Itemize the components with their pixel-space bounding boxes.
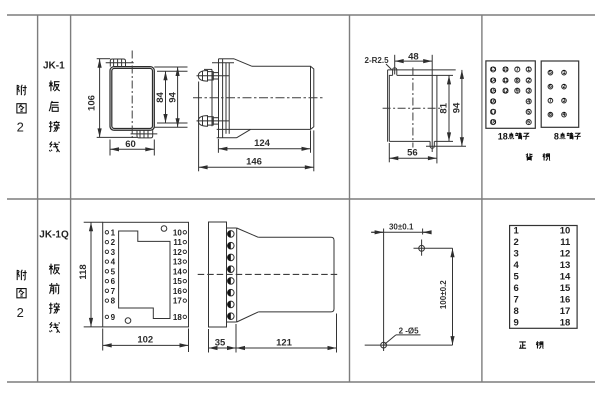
svg-text:8: 8: [516, 78, 519, 84]
svg-text:121: 121: [276, 338, 293, 349]
svg-text:100±0.2: 100±0.2: [439, 280, 448, 309]
svg-text:2: 2: [17, 305, 24, 320]
svg-text:8: 8: [549, 112, 552, 118]
svg-text:4: 4: [563, 112, 566, 118]
svg-text:7: 7: [111, 287, 116, 296]
svg-text:12: 12: [173, 248, 182, 257]
svg-text:56: 56: [407, 148, 418, 159]
svg-text:1: 1: [111, 228, 116, 237]
svg-text:18: 18: [173, 313, 182, 322]
svg-text:17: 17: [173, 297, 182, 306]
svg-text:3: 3: [563, 98, 566, 104]
svg-text:12: 12: [560, 249, 571, 260]
svg-text:11: 11: [560, 237, 571, 248]
svg-text:10: 10: [173, 228, 182, 237]
svg-text:94: 94: [167, 92, 178, 103]
svg-text:3: 3: [111, 248, 116, 257]
svg-text:JK-1: JK-1: [43, 60, 65, 71]
svg-text:JK-1Q: JK-1Q: [39, 229, 69, 240]
svg-text:7: 7: [549, 98, 552, 104]
svg-text:15: 15: [173, 277, 182, 286]
svg-text:2: 2: [111, 238, 116, 247]
svg-text:14: 14: [490, 78, 496, 84]
svg-text:84: 84: [155, 92, 166, 103]
svg-text:8: 8: [514, 306, 519, 317]
svg-text:4: 4: [514, 260, 520, 271]
svg-text:1: 1: [527, 67, 530, 73]
svg-text:60: 60: [125, 139, 136, 150]
svg-text:7: 7: [516, 67, 519, 73]
svg-text:9: 9: [514, 318, 519, 329]
svg-text:146: 146: [246, 157, 262, 168]
svg-text:13: 13: [560, 260, 571, 271]
svg-text:4: 4: [111, 258, 116, 267]
svg-text:17: 17: [560, 306, 571, 317]
svg-text:13: 13: [173, 258, 182, 267]
svg-text:5: 5: [514, 272, 520, 283]
svg-text:10: 10: [503, 67, 509, 73]
svg-text:3: 3: [527, 88, 530, 94]
svg-text:1: 1: [563, 70, 566, 76]
svg-text:17: 17: [490, 109, 496, 115]
svg-text:2: 2: [563, 84, 566, 90]
svg-text:2: 2: [514, 237, 519, 248]
svg-text:124: 124: [254, 138, 271, 149]
svg-text:6: 6: [549, 84, 552, 90]
svg-text:48: 48: [408, 51, 419, 62]
svg-text:16: 16: [173, 287, 182, 296]
svg-text:5: 5: [527, 109, 530, 115]
svg-text:2: 2: [527, 78, 530, 84]
svg-text:5: 5: [549, 70, 552, 76]
svg-text:102: 102: [137, 334, 153, 345]
svg-text:35: 35: [215, 338, 226, 349]
svg-text:18: 18: [498, 131, 508, 141]
svg-text:6: 6: [111, 277, 116, 286]
svg-text:106: 106: [87, 95, 98, 111]
svg-text:16: 16: [560, 295, 571, 306]
svg-text:3: 3: [514, 249, 519, 260]
svg-text:18: 18: [490, 120, 496, 126]
svg-text:6: 6: [527, 120, 530, 126]
svg-text:9: 9: [111, 313, 116, 322]
svg-text:9: 9: [516, 88, 519, 94]
svg-text:13: 13: [490, 67, 496, 73]
svg-text:8: 8: [554, 131, 559, 141]
svg-text:30±0.1: 30±0.1: [389, 222, 414, 231]
svg-text:7: 7: [514, 295, 519, 306]
svg-text:94: 94: [451, 102, 462, 113]
svg-text:15: 15: [560, 283, 571, 294]
svg-text:14: 14: [173, 267, 182, 276]
svg-text:11: 11: [503, 78, 509, 84]
svg-text:12: 12: [503, 88, 509, 94]
svg-text:16: 16: [490, 99, 496, 105]
svg-text:1: 1: [514, 226, 520, 237]
svg-text:11: 11: [173, 238, 182, 247]
svg-text:4: 4: [527, 99, 530, 105]
svg-text:6: 6: [514, 283, 519, 294]
svg-text:81: 81: [438, 102, 449, 113]
svg-text:2-R2.5: 2-R2.5: [365, 56, 390, 65]
svg-text:2 -Ø5: 2 -Ø5: [399, 326, 420, 335]
svg-text:14: 14: [560, 272, 571, 283]
svg-text:118: 118: [78, 264, 89, 279]
svg-text:5: 5: [111, 267, 116, 276]
svg-text:2: 2: [17, 120, 24, 135]
svg-text:8: 8: [111, 297, 116, 306]
svg-text:10: 10: [560, 226, 571, 237]
svg-text:15: 15: [490, 88, 496, 94]
svg-text:18: 18: [560, 318, 571, 329]
